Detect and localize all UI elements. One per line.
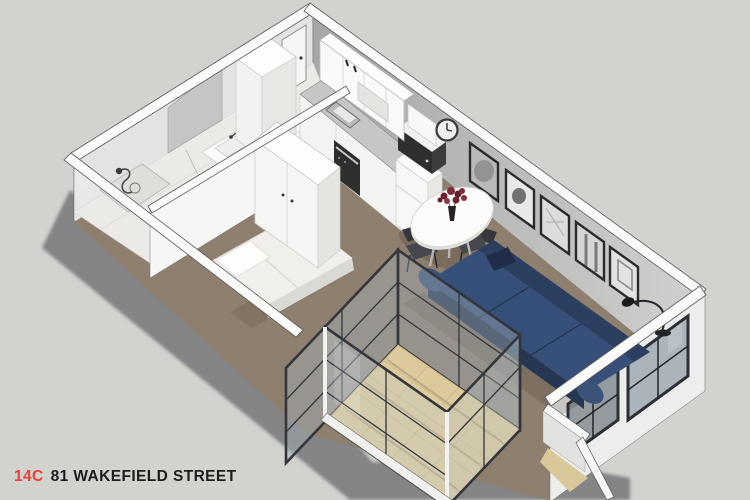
floorplan-render-image: 14C 81 WAKEFIELD STREET [0,0,750,500]
door-handle [299,56,302,59]
street-address: 81 WAKEFIELD STREET [51,468,237,486]
caption: 14C 81 WAKEFIELD STREET [14,468,237,486]
wall-clock [437,120,458,141]
unit-number: 14C [14,468,44,486]
floorplan-3d-scene [0,0,750,500]
